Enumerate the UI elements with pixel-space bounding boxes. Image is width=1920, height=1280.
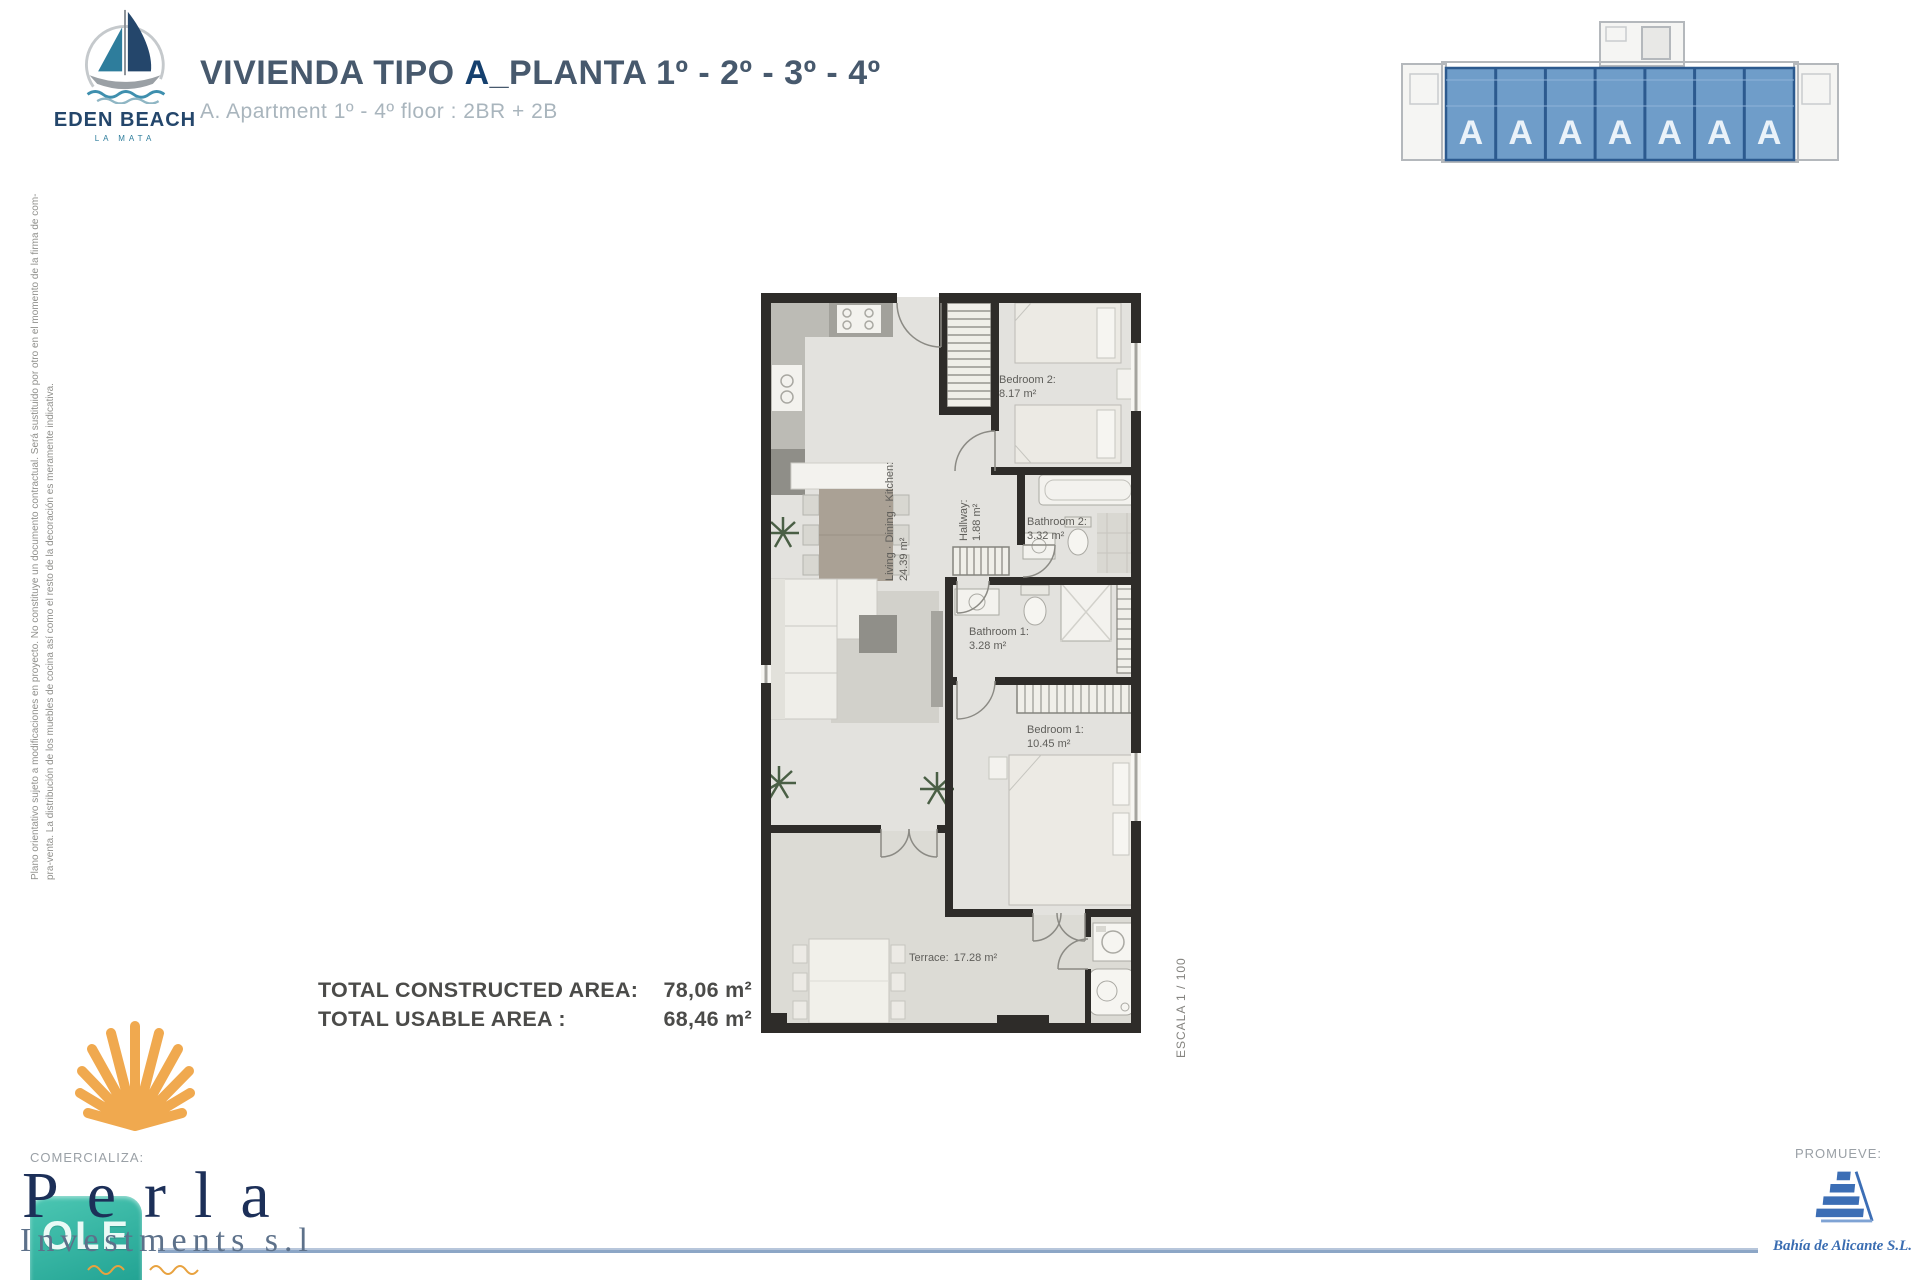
- nightstand: [989, 757, 1007, 779]
- footer-divider-line: [158, 1248, 1758, 1253]
- room-label: Bedroom 1:: [1027, 724, 1084, 736]
- room-area: 3.28 m²: [969, 640, 1007, 652]
- total-constructed-row: TOTAL CONSTRUCTED AREA: 78,06 m²: [318, 976, 752, 1005]
- washing-machine: [1093, 923, 1133, 961]
- total-constructed-value: 78,06 m²: [664, 976, 752, 1005]
- page-subtitle: A. Apartment 1º - 4º floor : 2BR + 2B: [200, 100, 881, 124]
- room-label: Terrace:17.28 m²: [909, 952, 997, 964]
- tv-unit: [931, 611, 943, 707]
- disclaimer-line: pra-venta. La distribución de los mueble…: [43, 170, 58, 880]
- brand-name: EDEN BEACH: [45, 109, 205, 132]
- comercializa-label: COMERCIALIZA:: [30, 1150, 144, 1165]
- floor-plan-svg: Bedroom 2: 8.17 m² Bathroom 2: 3.32 m² H…: [741, 281, 1161, 1041]
- total-constructed-label: TOTAL CONSTRUCTED AREA:: [318, 976, 638, 1005]
- unit-label: A: [1757, 114, 1782, 152]
- laundry-sink: [1089, 969, 1135, 1015]
- floor-plan: Bedroom 2: 8.17 m² Bathroom 2: 3.32 m² H…: [741, 281, 1161, 1046]
- unit-label: A: [1608, 114, 1633, 152]
- terrace-table: [793, 939, 905, 1023]
- room-area: 1.88 m²: [971, 503, 983, 541]
- room-label: Bedroom 2:: [999, 374, 1056, 386]
- unit-label: A: [1558, 114, 1583, 152]
- room-label: Bathroom 2:: [1027, 516, 1087, 528]
- single-bed: [1015, 405, 1121, 463]
- kitchen-island: [791, 463, 891, 489]
- developer-name: Bahía de Alicante S.L.: [1756, 1238, 1912, 1255]
- disclaimer-line: Plano orientativo sujeto a modificacione…: [28, 170, 43, 880]
- room-label: Bathroom 1:: [969, 626, 1029, 638]
- single-bed: [1015, 303, 1121, 363]
- unit-label: A: [1657, 114, 1682, 152]
- unit-type-letter: A: [465, 54, 490, 92]
- sailboat-icon: [69, 8, 181, 104]
- page-title-block: VIVIENDA TIPO A_PLANTA 1º - 2º - 3º - 4º…: [200, 54, 881, 124]
- signature-squiggle-icon: [86, 1262, 206, 1280]
- room-area: 8.17 m²: [999, 388, 1037, 400]
- shoe-cabinet: [953, 547, 1009, 575]
- building-key-plan: A A A A A A A: [1392, 14, 1848, 171]
- area-totals: TOTAL CONSTRUCTED AREA: 78,06 m² TOTAL U…: [318, 976, 752, 1034]
- promueve-label: PROMUEVE:: [1795, 1146, 1882, 1161]
- legal-disclaimer: Plano orientativo sujeto a modificacione…: [28, 170, 58, 880]
- unit-label: A: [1707, 114, 1732, 152]
- scale-label: ESCALA 1 / 100: [1174, 918, 1188, 1058]
- brand-logo: EDEN BEACH LA MATA: [45, 8, 205, 143]
- shower: [1061, 583, 1111, 641]
- shell-icon: [55, 992, 215, 1147]
- room-label: Hallway:: [958, 499, 970, 541]
- total-usable-row: TOTAL USABLE AREA : 68,46 m²: [318, 1005, 752, 1034]
- unit-label: A: [1459, 114, 1484, 152]
- hall-closet: [947, 303, 991, 407]
- developer-logo-icon: [1800, 1166, 1880, 1243]
- coffee-table: [859, 615, 897, 653]
- brand-tagline: LA MATA: [45, 134, 205, 143]
- seller-subname: Investments s.l: [20, 1222, 314, 1260]
- unit-label: A: [1508, 114, 1533, 152]
- bathtub: [1039, 475, 1137, 505]
- room-label: Living · Dining · Kitchen:: [884, 462, 896, 581]
- brochure-sheet: EDEN BEACH LA MATA VIVIENDA TIPO A_PLANT…: [0, 0, 1920, 1280]
- wardrobe: [1017, 683, 1137, 713]
- double-bed: [1009, 755, 1137, 905]
- room-area: 3.32 m²: [1027, 530, 1065, 542]
- page-title: VIVIENDA TIPO A_PLANTA 1º - 2º - 3º - 4º: [200, 54, 881, 93]
- sink: [955, 589, 999, 615]
- key-plan-svg: A A A A A A A: [1392, 14, 1848, 166]
- total-usable-value: 68,46 m²: [664, 1005, 752, 1034]
- room-area: 10.45 m²: [1027, 738, 1071, 750]
- room-area: 24.39 m²: [898, 537, 910, 581]
- total-usable-label: TOTAL USABLE AREA :: [318, 1005, 566, 1034]
